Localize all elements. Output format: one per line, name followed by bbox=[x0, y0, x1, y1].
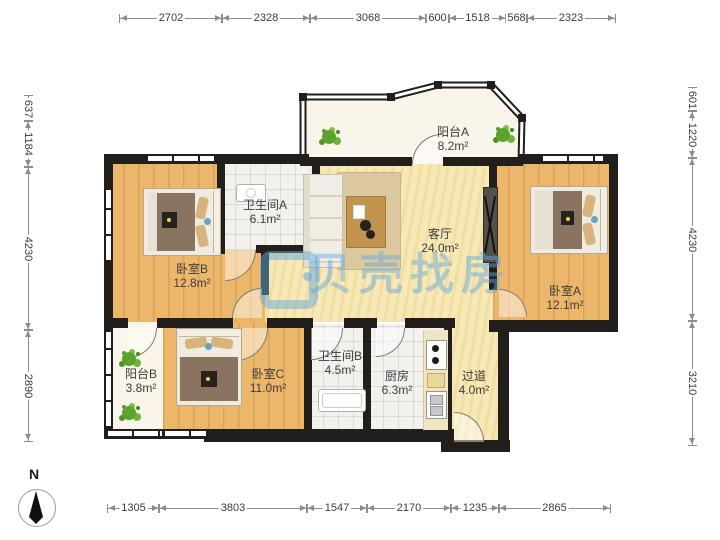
room-label-bathroom-b: 卫生间B4.5m² bbox=[318, 350, 362, 377]
wall bbox=[261, 245, 269, 295]
dim-bottom-1: 1305 bbox=[108, 508, 159, 509]
room-label-living-room: 客厅24.0m² bbox=[421, 228, 458, 255]
floor-plan-canvas: 阳台A8.2m² 卫生间A6.1m² 卧室B12.8m² 客厅24.0m² 卧室… bbox=[0, 0, 720, 540]
plant-icon bbox=[122, 352, 136, 366]
compass-needle-icon bbox=[29, 491, 43, 517]
window-bedroom-c-bottom bbox=[163, 429, 206, 438]
wall bbox=[104, 318, 128, 328]
dim-top-6: 568 bbox=[506, 18, 527, 19]
plant-icon bbox=[322, 130, 336, 144]
coffee-table bbox=[346, 196, 386, 248]
room-label-bedroom-b: 卧室B12.8m² bbox=[173, 263, 210, 290]
dim-bottom-6: 2865 bbox=[499, 508, 610, 509]
dim-bottom-2: 3803 bbox=[159, 508, 307, 509]
compass-north-label: N bbox=[29, 466, 39, 482]
kitchen-item bbox=[427, 373, 445, 388]
wall bbox=[157, 318, 233, 328]
dim-left-1: 637 bbox=[28, 96, 29, 121]
dim-top-2: 2328 bbox=[222, 18, 310, 19]
wall bbox=[204, 429, 454, 442]
dim-top-7: 2323 bbox=[527, 18, 615, 19]
wall bbox=[363, 324, 371, 434]
window-bedroom-b-top bbox=[146, 154, 214, 163]
dim-right-4: 3210 bbox=[692, 321, 693, 445]
dim-left-3: 4230 bbox=[28, 167, 29, 330]
dim-bottom-4: 2170 bbox=[367, 508, 451, 509]
room-label-bedroom-a: 卧室A12.1m² bbox=[546, 285, 583, 312]
room-label-bathroom-a: 卫生间A6.1m² bbox=[243, 199, 287, 226]
window-bedroom-a-top bbox=[541, 154, 603, 163]
dim-right-1: 601 bbox=[692, 88, 693, 111]
plant-icon bbox=[496, 128, 510, 142]
window-balcony-b-bottom bbox=[106, 429, 162, 438]
bed-bedroom-a bbox=[530, 186, 608, 254]
wall bbox=[609, 154, 618, 332]
bed-bedroom-c bbox=[176, 328, 242, 406]
room-label-hallway: 过道4.0m² bbox=[459, 370, 490, 397]
dim-top-3: 3068 bbox=[310, 18, 426, 19]
room-label-balcony-a: 阳台A8.2m² bbox=[437, 126, 469, 153]
room-label-bedroom-c: 卧室C11.0m² bbox=[250, 368, 286, 395]
wall bbox=[344, 318, 377, 328]
kitchen-sink bbox=[426, 391, 447, 419]
dim-top-1: 2702 bbox=[120, 18, 222, 19]
stove bbox=[426, 340, 447, 370]
dim-right-3: 4230 bbox=[692, 158, 693, 321]
window-bedroom-b-left bbox=[104, 190, 113, 262]
compass-needle-icon bbox=[29, 517, 43, 524]
wall bbox=[443, 157, 523, 166]
room-label-kitchen: 厨房6.3m² bbox=[382, 370, 413, 397]
wall bbox=[489, 320, 618, 332]
dim-top-4: 600 bbox=[426, 18, 449, 19]
dim-right-2: 1220 bbox=[692, 111, 693, 158]
dim-left-4: 2890 bbox=[28, 330, 29, 441]
dim-left-2: 1184 bbox=[28, 121, 29, 167]
dim-bottom-3: 1547 bbox=[307, 508, 367, 509]
window-balcony-b-left bbox=[104, 332, 113, 428]
dim-bottom-5: 1235 bbox=[451, 508, 499, 509]
dim-top-5: 1518 bbox=[449, 18, 506, 19]
plant-icon bbox=[122, 406, 136, 420]
room-label-balcony-b: 阳台B3.8m² bbox=[125, 368, 157, 395]
bed-bedroom-b bbox=[143, 188, 221, 256]
wall bbox=[498, 320, 509, 452]
bathtub-bathroom-b bbox=[318, 389, 366, 412]
wall bbox=[300, 157, 412, 166]
tv-unit bbox=[483, 187, 498, 263]
sofa bbox=[303, 174, 343, 268]
